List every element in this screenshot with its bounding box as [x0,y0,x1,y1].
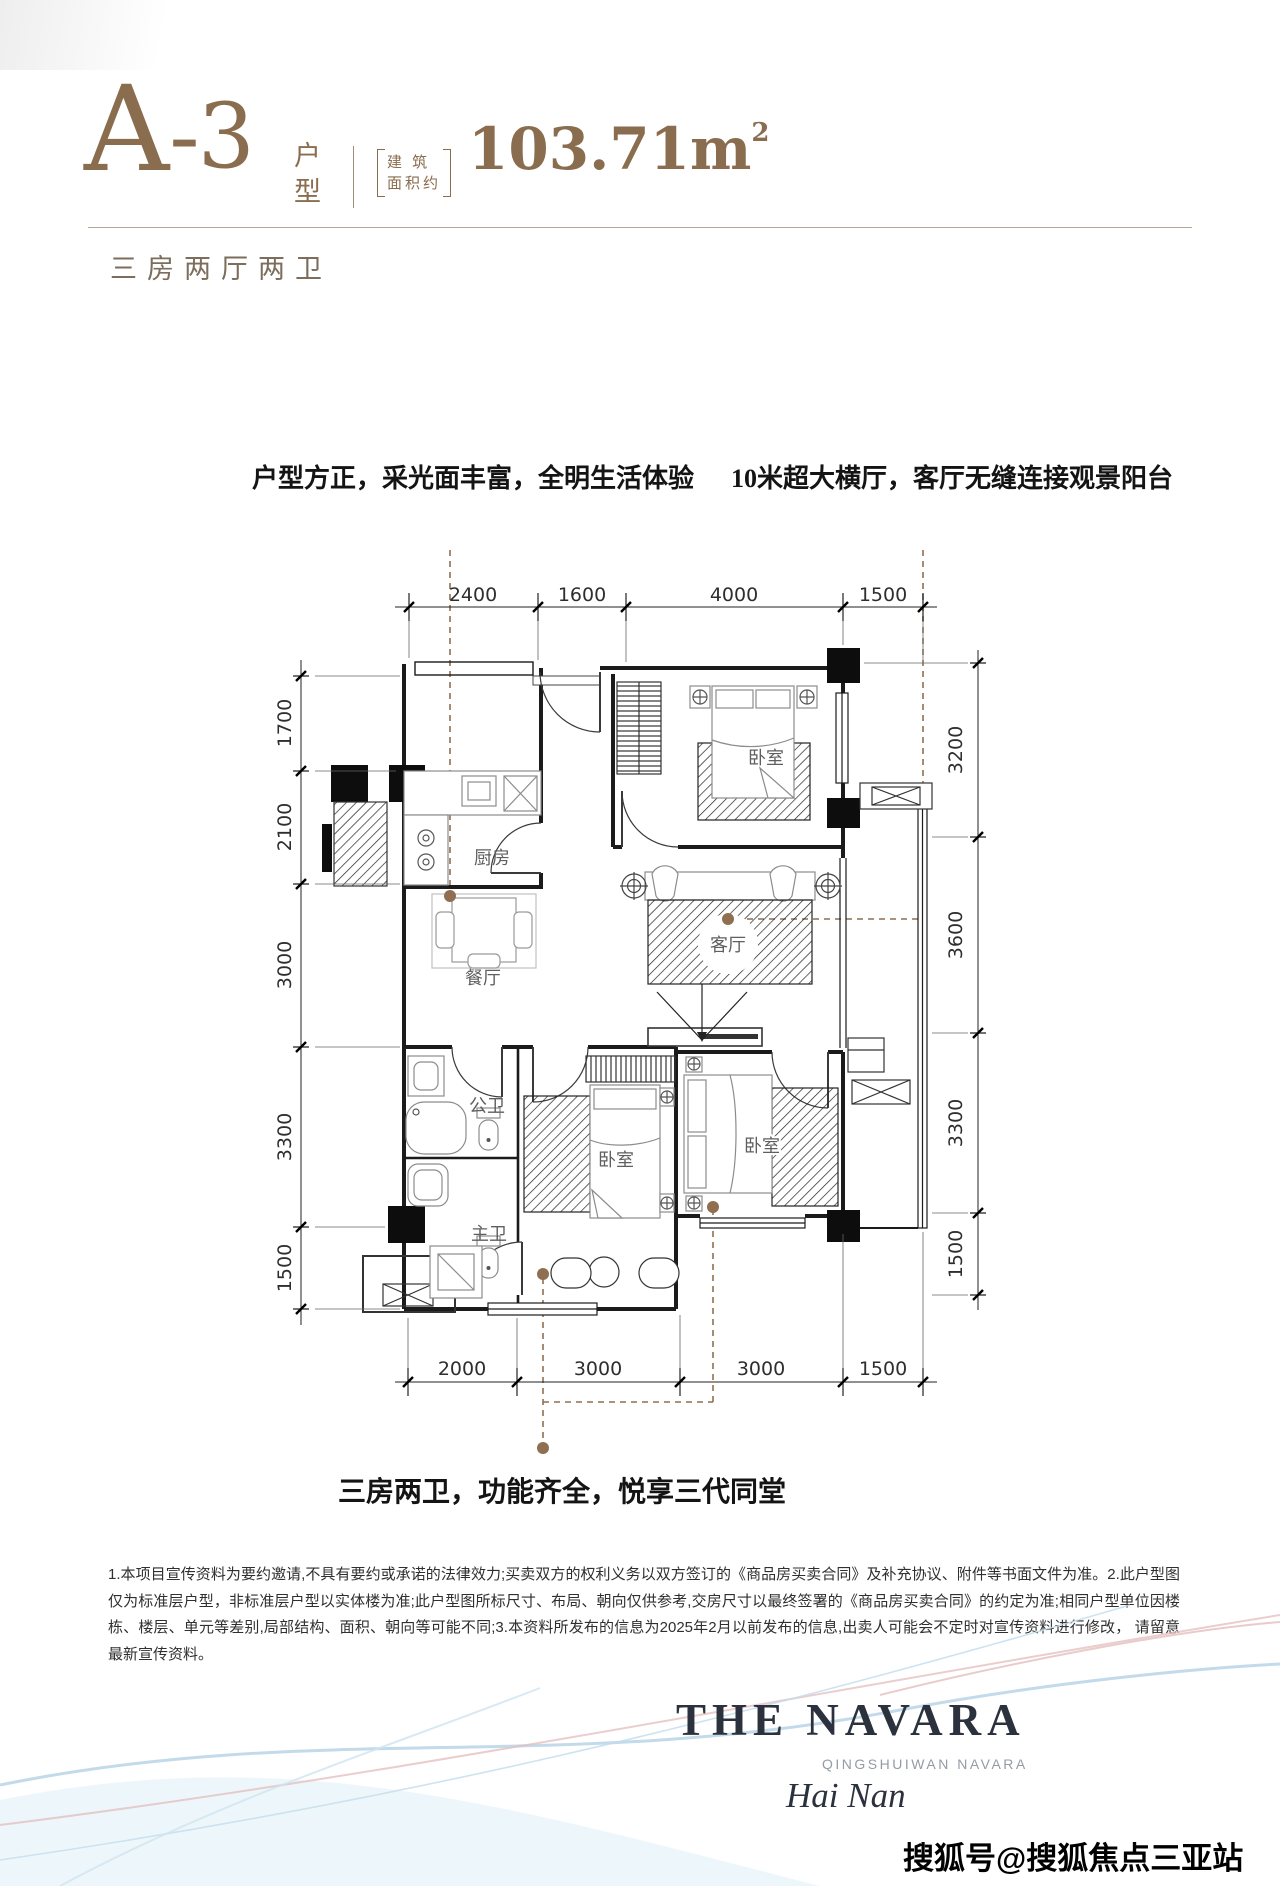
layout-subtitle: 三房两厅两卫 [110,247,332,286]
living-furniture [620,866,842,1046]
unit-letter: A [84,70,169,188]
dim-bottom-0: 2000 [438,1358,486,1380]
bedroom-top-door [622,791,678,847]
area-sup: 2 [751,118,769,148]
dim-left-1: 2100 [274,803,296,851]
header-rule [88,227,1192,228]
area-label-line1: 建 筑 [387,152,441,173]
dim-right-3: 1500 [945,1230,967,1278]
area-label-line2: 面积约 [387,173,441,194]
label-kitchen: 厨房 [474,848,510,868]
dim-left-0: 1700 [274,699,296,747]
annotation-bottom: 三房两卫，功能齐全，悦享三代同堂 [338,1470,786,1510]
watermark: 搜狐号@搜狐焦点三亚站 [903,1833,1243,1878]
label-dining: 餐厅 [465,968,501,988]
annotation-left: 户型方正，采光面丰富，全明生活体验 [252,458,694,495]
dim-right-0: 3200 [945,726,967,774]
dim-right-2: 3300 [945,1099,967,1147]
bedroom-mid-door [533,1047,588,1102]
dim-bottom-2: 3000 [737,1358,785,1380]
project-logo: THE NAVARA [676,1694,1026,1746]
dim-bottom-1: 3000 [574,1358,622,1380]
label-bedroom-mid: 卧室 [598,1150,634,1170]
annotation-right: 10米超大横厅，客厅无缝连接观景阳台 [731,458,1173,495]
project-logo-subtitle: QINGSHUIWAN NAVARA [822,1756,1028,1772]
unit-type-char-top: 户 [294,142,321,172]
unit-number: -3 [169,92,253,182]
area-value: 103.71m2 [468,120,769,178]
label-bedroom-top: 卧室 [748,748,784,768]
furniture [404,682,932,1298]
project-location: Hai Nan [786,1776,906,1816]
entry-threshold [533,676,600,685]
dim-top-3: 1500 [859,584,907,606]
sitting-table-set [551,1257,679,1288]
unit-title: A -3 [84,70,253,188]
entry-wall-band [415,662,533,675]
dim-top-1: 1600 [558,584,606,606]
dim-left-3: 3300 [274,1113,296,1161]
label-bedroom-right: 卧室 [744,1136,780,1156]
unit-type-label: 户 型 [294,142,321,207]
dim-bottom-3: 1500 [859,1358,907,1380]
bedroom-top-furniture [617,682,817,820]
dim-right-1: 3600 [945,911,967,959]
wave-fill [0,1777,820,1886]
unit-type-char-bottom: 型 [294,178,321,208]
dining-table [432,894,536,968]
label-living: 客厅 [710,935,746,955]
bedroom-mid-furniture [524,1056,675,1218]
dim-left-4: 1500 [274,1244,296,1292]
header-divider [353,146,354,208]
dim-top-2: 4000 [710,584,758,606]
kitchen-counter [404,771,541,885]
area-label-bracket: 建 筑 面积约 [377,149,451,197]
floorplan-svg: 厨房 餐厅 卧室 客厅 公卫 主卫 卧室 卧室 [270,545,1000,1460]
bath-public-door [452,1047,502,1097]
label-bath-public: 公卫 [469,1096,505,1116]
dim-left-2: 3000 [274,941,296,989]
page: { "colors": { "accent": "#8a6d4e", "lead… [0,0,1280,1886]
label-bath-master: 主卫 [471,1224,507,1244]
bedroom-right-furniture [684,1057,838,1211]
dim-top-0: 2400 [449,584,497,606]
